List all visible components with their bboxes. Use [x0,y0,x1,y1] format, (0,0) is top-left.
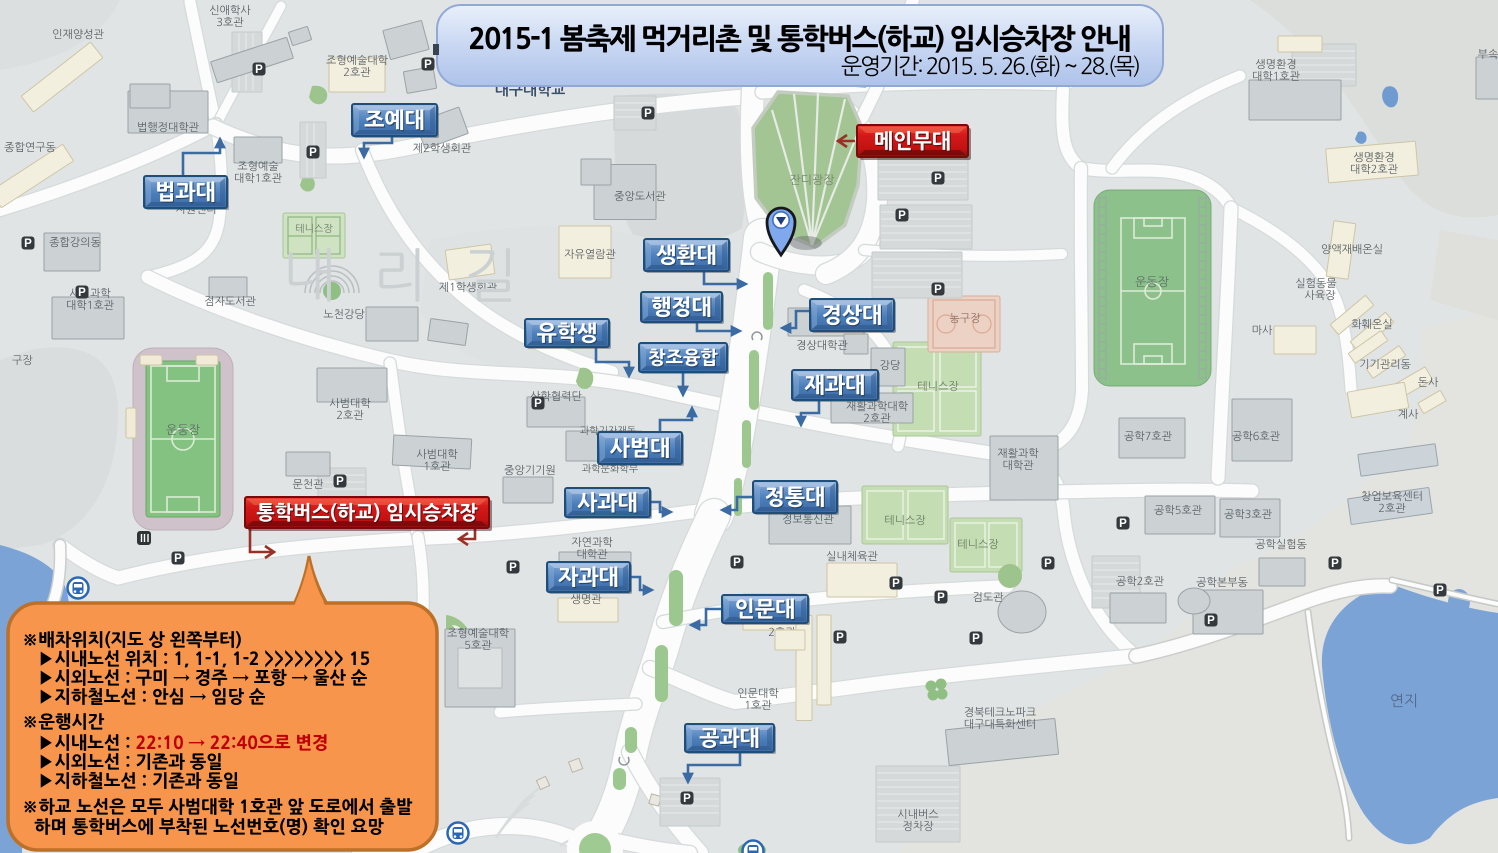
svg-text:P: P [1044,558,1052,570]
svg-text:P: P [255,64,263,76]
svg-text:P: P [78,287,86,299]
svg-text:P: P [1119,518,1127,530]
svg-text:P: P [644,108,652,120]
svg-text:P: P [1207,615,1215,627]
svg-text:P: P [972,633,980,645]
svg-text:P: P [937,592,945,604]
svg-text:P: P [24,238,32,250]
svg-text:P: P [898,210,906,222]
svg-text:P: P [1331,558,1339,570]
svg-text:P: P [683,793,691,805]
svg-text:P: P [934,284,942,296]
svg-text:P: P [174,553,182,565]
svg-text:P: P [892,578,900,590]
svg-text:P: P [934,173,942,185]
svg-text:P: P [1436,585,1444,597]
svg-text:P: P [309,147,317,159]
svg-text:P: P [424,59,432,71]
svg-text:P: P [336,476,344,488]
svg-text:P: P [733,557,741,569]
svg-text:P: P [509,562,517,574]
svg-text:P: P [534,398,542,410]
svg-text:P: P [836,632,844,644]
